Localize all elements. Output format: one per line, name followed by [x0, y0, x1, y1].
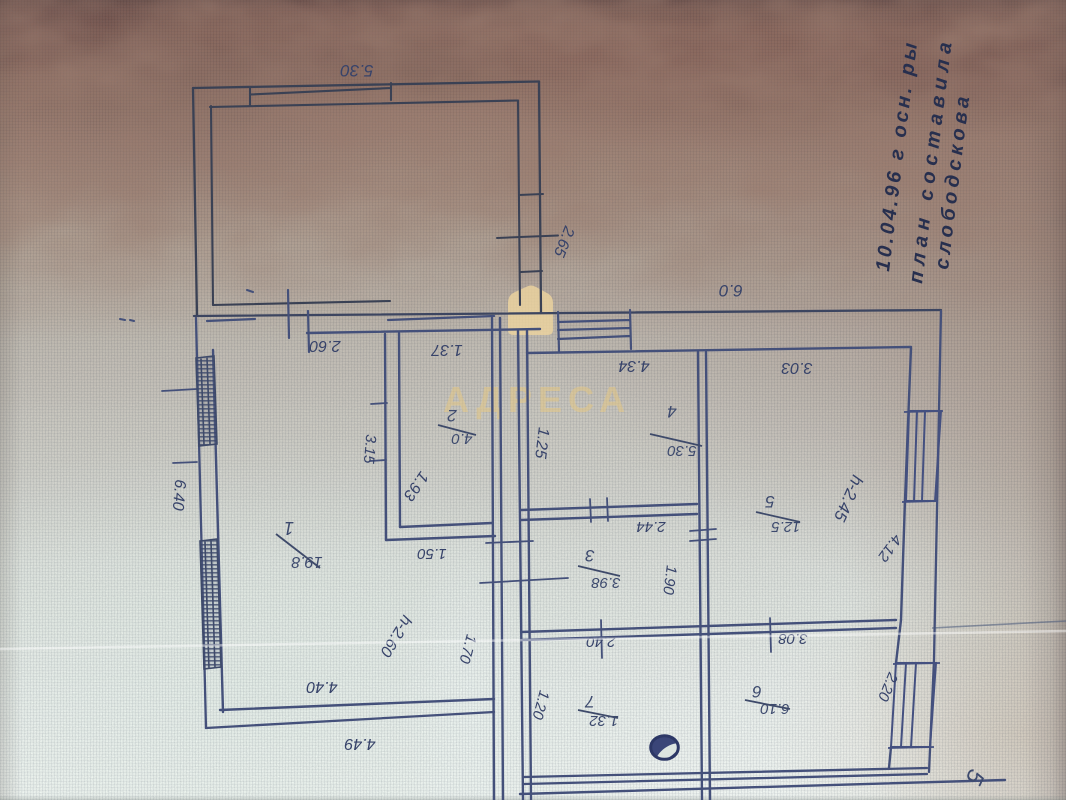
svg-text:5.30: 5.30 [340, 61, 374, 80]
svg-text:1: 1 [284, 518, 294, 538]
svg-text:7: 7 [585, 692, 595, 711]
svg-text:3.98: 3.98 [591, 574, 621, 591]
svg-text:1.37: 1.37 [430, 341, 462, 358]
svg-text:6.40: 6.40 [169, 479, 189, 512]
svg-text:6: 6 [752, 682, 762, 701]
svg-text:4: 4 [667, 402, 676, 421]
svg-text:1.50: 1.50 [417, 545, 447, 562]
svg-text:3: 3 [585, 546, 595, 565]
svg-text:2: 2 [447, 406, 458, 425]
svg-text:2.44: 2.44 [636, 518, 666, 535]
svg-text:4.40: 4.40 [306, 678, 337, 695]
svg-text:3.15: 3.15 [360, 434, 380, 465]
svg-text:3.08: 3.08 [778, 630, 808, 647]
svg-text:3.03: 3.03 [781, 359, 812, 376]
svg-text:2.60: 2.60 [309, 337, 341, 354]
svg-text:2.40: 2.40 [586, 633, 617, 650]
svg-text:4.49: 4.49 [344, 735, 375, 752]
svg-text:5: 5 [765, 492, 775, 511]
svg-text:6.0: 6.0 [719, 281, 743, 300]
svg-text:4.34: 4.34 [618, 357, 649, 374]
svg-text:АДРЕСА: АДРЕСА [443, 379, 631, 420]
svg-text:1.90: 1.90 [659, 564, 680, 596]
